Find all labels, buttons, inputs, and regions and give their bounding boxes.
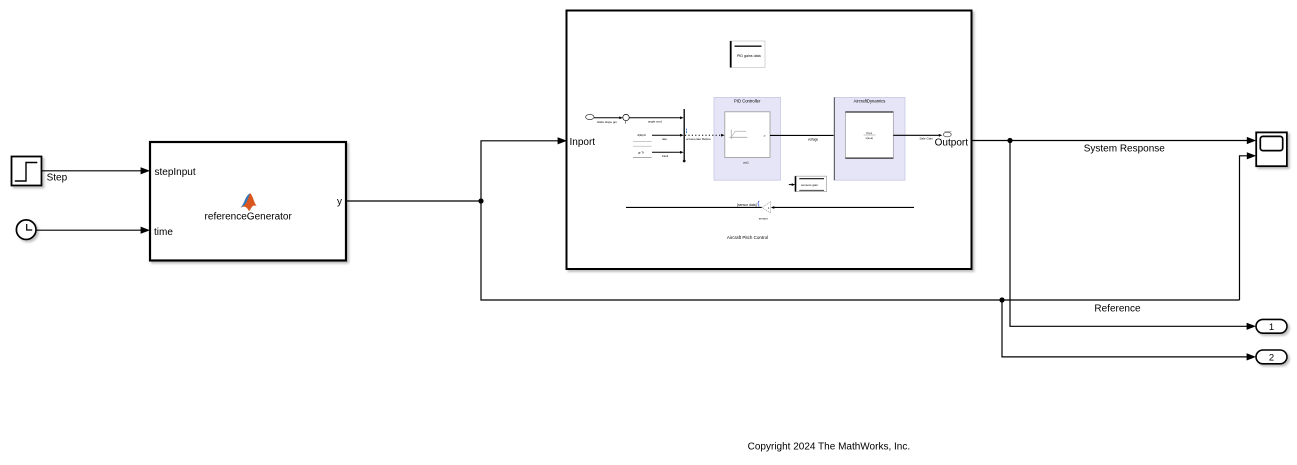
svg-text:voltage: voltage (808, 137, 819, 141)
svg-text:Generate Refere: Generate Refere (689, 137, 712, 141)
svg-text:time: time (154, 227, 173, 238)
svg-text:Safe Gain: Safe Gain (920, 137, 934, 141)
svg-text:PID gains data: PID gains data (737, 54, 761, 58)
svg-text:AircraftDynamics: AircraftDynamics (854, 99, 886, 104)
svg-text:Glide slope gm: Glide slope gm (597, 120, 618, 124)
svg-text:s(s+a): s(s+a) (866, 136, 873, 140)
svg-text:track: track (662, 154, 669, 158)
svg-text:referenceGenerator: referenceGenerator (205, 212, 293, 223)
svg-text:rate: rate (662, 137, 668, 141)
svg-text:1: 1 (1269, 322, 1274, 333)
svg-text:Copyright 2024 The MathWorks,: Copyright 2024 The MathWorks, Inc. (748, 442, 911, 453)
svg-text:sensor: sensor (759, 216, 768, 220)
svg-text:2: 2 (1269, 352, 1274, 363)
svg-text:stepInput: stepInput (155, 167, 196, 178)
svg-text:Kq w: Kq w (866, 131, 872, 135)
svg-text:y: y (337, 196, 342, 207)
svg-text:PID Controller: PID Controller (734, 99, 761, 104)
svg-text:sensors gain: sensors gain (801, 183, 818, 187)
svg-text:Step: Step (47, 172, 68, 183)
svg-text:Aircraft Pitch Control: Aircraft Pitch Control (727, 235, 768, 240)
svg-text:d(E)dt: d(E)dt (638, 133, 646, 137)
svg-text:Reference: Reference (1094, 304, 1141, 315)
svg-text:Outport: Outport (935, 137, 969, 148)
svg-text:Inport: Inport (570, 137, 596, 148)
svg-text:angle cmd: angle cmd (648, 120, 662, 124)
svg-text:out1: out1 (743, 160, 749, 164)
svg-text:>: > (764, 134, 766, 138)
svg-text:[sensor data]: [sensor data] (737, 203, 757, 207)
svg-text:System Response: System Response (1084, 144, 1166, 155)
svg-text:gr Tr: gr Tr (638, 150, 644, 154)
